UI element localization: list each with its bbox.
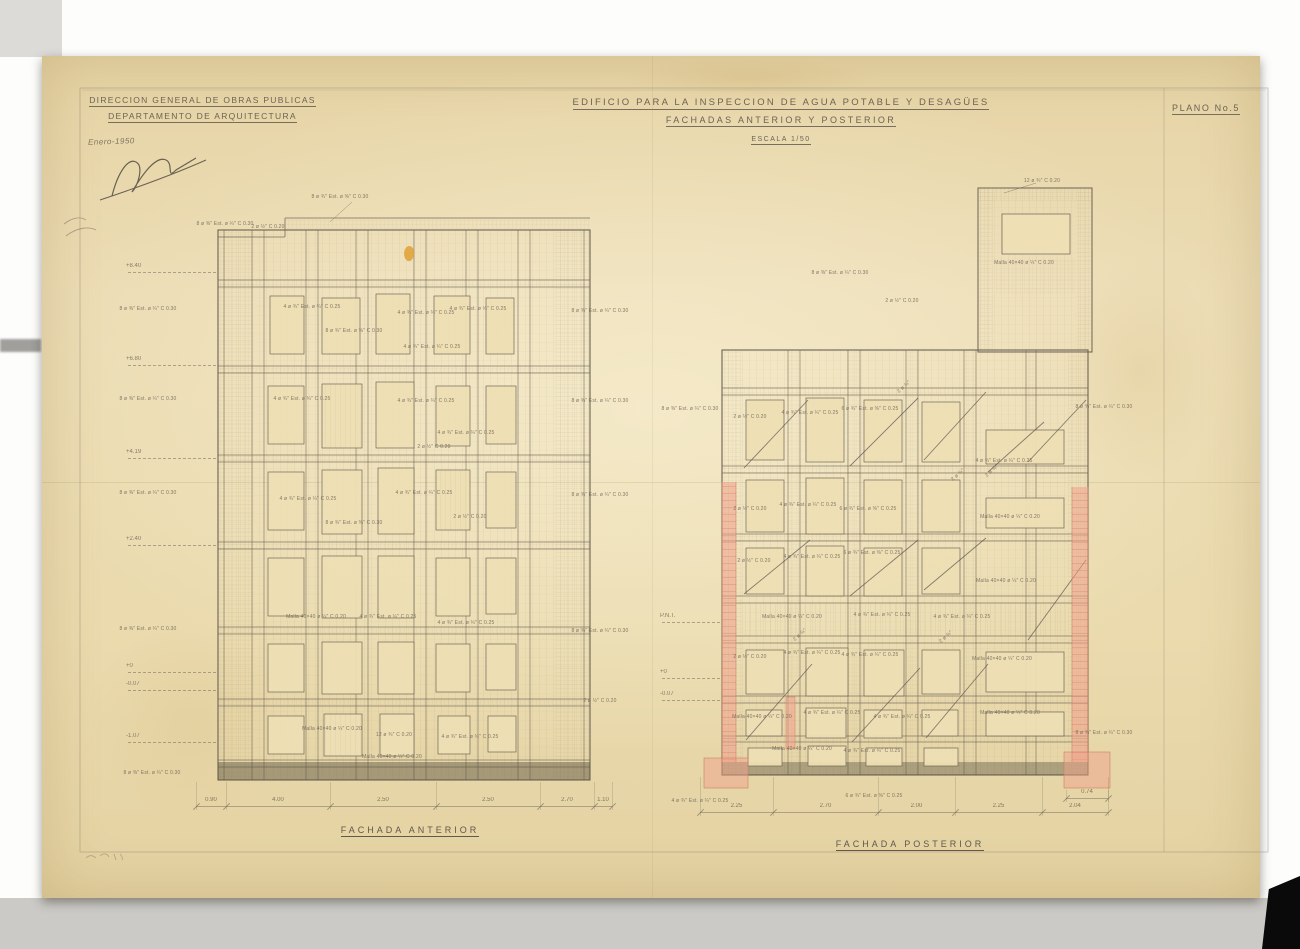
elevation-label: -0.07 xyxy=(126,681,140,687)
rebar-callout: 8 ø ⅜″ Est. ø ¼″ C 0.30 xyxy=(119,490,176,496)
org-line-1: DIRECCION GENERAL DE OBRAS PUBLICAS xyxy=(89,95,316,107)
datum-dash xyxy=(662,622,720,623)
rebar-callout: 4 ø ¾″ Est. ø ¼″ C 0.25 xyxy=(397,310,454,316)
rebar-callout: 8 ø ⅜″ Est. ø ¼″ C 0.30 xyxy=(661,406,718,412)
elevation-label: +8.40 xyxy=(126,263,141,269)
dim-anterior-value: 2.50 xyxy=(377,797,389,803)
dim-anterior-value: 1.10 xyxy=(597,797,609,803)
rebar-callout: 8 ø ⅜″ Est. ø ¼″ C 0.30 xyxy=(571,308,628,314)
elevation-label: +4.19 xyxy=(126,449,141,455)
rebar-callout: 2 ø ½″ C 0.20 xyxy=(583,698,616,704)
elevation-label: +6.80 xyxy=(126,356,141,362)
dim-posterior-line xyxy=(700,812,1108,813)
datum-dash xyxy=(662,678,720,679)
dim-posterior-extension xyxy=(1042,777,1043,816)
rebar-callout: 4 ø ¾″ Est. ø ¼″ C 0.25 xyxy=(933,614,990,620)
drawing-title-block: EDIFICIO PARA LA INSPECCION DE AGUA POTA… xyxy=(498,92,1064,146)
dim-anterior-line xyxy=(196,806,612,807)
rebar-callout: Malla 40×40 ø ¼″ C 0.20 xyxy=(732,714,792,720)
dim-footing-extension xyxy=(1108,790,1109,802)
rebar-callout: 8 ø ¾″ Est. ø ⅜″ C 0.30 xyxy=(325,520,382,526)
rebar-callout: 2 ø ½″ C 0.20 xyxy=(885,298,918,304)
rebar-callout: Malla 40×40 ø ¼″ C 0.20 xyxy=(772,746,832,752)
rebar-callout: 4 ø ¾″ Est. ø ¼″ C 0.25 xyxy=(397,398,454,404)
dim-posterior-value: 2.04 xyxy=(1069,803,1081,809)
rebar-callout: 2 ø ½″ C 0.20 xyxy=(453,514,486,520)
facade-posterior-drawing xyxy=(722,183,1092,775)
rebar-callout: Malla 40×40 ø ¼″ C 0.20 xyxy=(762,614,822,620)
facade-anterior-label: FACHADA ANTERIOR xyxy=(341,825,480,837)
scanned-drawing-page: DIRECCION GENERAL DE OBRAS PUBLICAS DEPA… xyxy=(0,0,1300,949)
date-note: Enero-1950 xyxy=(88,136,135,147)
rebar-callout: 4 ø ¾″ Est. ø ¼″ C 0.25 xyxy=(779,502,836,508)
elevation-label: -1.07 xyxy=(126,733,140,739)
rebar-callout: 4 ø ¾″ Est. ø ¼″ C 0.25 xyxy=(783,554,840,560)
rebar-callout: Malla 40×40 ø ¼″ C 0.20 xyxy=(994,260,1054,266)
elevation-dash xyxy=(128,272,216,273)
rebar-callout: 12 ø ¾″ C 0.20 xyxy=(376,732,412,738)
rebar-callout: 8 ø ⅜″ Est. ø ¼″ C 0.30 xyxy=(1075,730,1132,736)
rebar-callout: 2 ø ½″ C 0.20 xyxy=(417,444,450,450)
rebar-callout: 4 ø ¾″ Est. ø ¼″ C 0.25 xyxy=(437,620,494,626)
elevation-dash xyxy=(128,545,216,546)
facade-posterior-label: FACHADA POSTERIOR xyxy=(836,839,985,851)
rebar-callout: 8 ø ⅜″ Est. ø ¼″ C 0.30 xyxy=(119,626,176,632)
dim-anterior-extension xyxy=(540,782,541,810)
dim-posterior-extension xyxy=(700,777,701,816)
dim-anterior-extension xyxy=(594,782,595,810)
rebar-callout: 4 ø ¾″ Est. ø ¼″ C 0.25 xyxy=(853,612,910,618)
elevation-dash xyxy=(128,458,216,459)
org-line-2: DEPARTAMENTO DE ARQUITECTURA xyxy=(108,111,297,123)
title-line-2: FACHADAS ANTERIOR Y POSTERIOR xyxy=(666,115,896,127)
dim-posterior-value: 2.00 xyxy=(911,803,923,809)
rebar-callout: 4 ø ¾″ Est. ø ¼″ C 0.25 xyxy=(395,490,452,496)
rebar-callout: Malla 40×40 ø ¼″ C 0.20 xyxy=(362,754,422,760)
rebar-callout: 8 ø ⅜″ Est. ø ¼″ C 0.30 xyxy=(571,398,628,404)
rebar-callout: 4 ø ¾″ Est. ø ¼″ C 0.25 xyxy=(437,430,494,436)
datum-label: P.N.T. xyxy=(660,613,676,619)
rebar-callout: 2 ø ½″ C 0.20 xyxy=(733,654,766,660)
rebar-callout: 4 ø ¾″ Est. ø ¼″ C 0.25 xyxy=(403,344,460,350)
rebar-callout: 2 ø ½″ C 0.20 xyxy=(733,506,766,512)
dim-anterior-value: 4.00 xyxy=(272,797,284,803)
dim-anterior-extension xyxy=(612,782,613,810)
rebar-callout: 4 ø ¾″ Est. ø ¼″ C 0.25 xyxy=(449,306,506,312)
rebar-callout: 8 ø ⅜″ Est. ø ¼″ C 0.30 xyxy=(119,396,176,402)
dim-posterior-extension xyxy=(878,777,879,816)
datum-dash xyxy=(662,700,720,701)
signature-scribble xyxy=(100,158,206,200)
dim-anterior-extension xyxy=(330,782,331,810)
rebar-callout: 2 ø ½″ C 0.20 xyxy=(251,224,284,230)
rebar-callout: 8 ø ¾″ Est. ø ⅜″ C 0.30 xyxy=(325,328,382,334)
rebar-callout: 8 ø ⅜″ Est. ø ¼″ C 0.30 xyxy=(811,270,868,276)
rebar-callout: Malla 40×40 ø ¼″ C 0.20 xyxy=(976,578,1036,584)
rebar-callout: Malla 40×40 ø ¼″ C 0.20 xyxy=(286,614,346,620)
rebar-callout: Malla 40×40 ø ¼″ C 0.20 xyxy=(302,726,362,732)
rebar-callout: 4 ø ¾″ Est. ø ¼″ C 0.25 xyxy=(273,396,330,402)
rebar-callout: 4 ø ¾″ Est. ø ¼″ C 0.25 xyxy=(783,650,840,656)
rebar-callout: 4 ø ¾″ Est. ø ¼″ C 0.25 xyxy=(843,748,900,754)
dim-anterior-value: 0.90 xyxy=(205,797,217,803)
dim-posterior-value: 2.25 xyxy=(731,803,743,809)
dim-anterior-extension xyxy=(436,782,437,810)
datum-label: +0 xyxy=(660,669,667,675)
rebar-callout: 4 ø ¾″ Est. ø ¼″ C 0.25 xyxy=(359,614,416,620)
dim-posterior-value: 2.70 xyxy=(820,803,832,809)
rebar-callout: 8 ø ¾″ Est. ø ⅜″ C 0.30 xyxy=(311,194,368,200)
rebar-callout: 8 ø ⅜″ Est. ø ¼″ C 0.30 xyxy=(571,492,628,498)
rebar-callout: 8 ø ⅜″ Est. ø ¼″ C 0.30 xyxy=(119,306,176,312)
rebar-callout: 12 ø ¾″ C 0.20 xyxy=(1024,178,1060,184)
rebar-callout: 4 ø ¾″ Est. ø ¼″ C 0.25 xyxy=(803,710,860,716)
elevation-dash xyxy=(128,365,216,366)
corner-number-scribble xyxy=(86,854,122,860)
dim-anterior-value: 2.70 xyxy=(561,797,573,803)
dim-anterior-extension xyxy=(196,782,197,810)
title-line-1: EDIFICIO PARA LA INSPECCION DE AGUA POTA… xyxy=(573,97,990,110)
elevation-label: +0 xyxy=(126,663,133,669)
rebar-callout: Malla 40×40 ø ¼″ C 0.20 xyxy=(980,710,1040,716)
datum-label: -0.07 xyxy=(660,691,674,697)
dim-posterior-extension xyxy=(773,777,774,816)
elevation-dash xyxy=(128,690,216,691)
dim-posterior-extension xyxy=(955,777,956,816)
dim-anterior-value: 2.50 xyxy=(482,797,494,803)
rebar-callout: 4 ø ¾″ Est. ø ¼″ C 0.25 xyxy=(781,410,838,416)
rebar-callout: Malla 40×40 ø ¼″ C 0.20 xyxy=(980,514,1040,520)
rebar-callout: 6 ø ¾″ Est. ø ⅜″ C 0.25 xyxy=(845,793,902,799)
rebar-callout: 8 ø ⅜″ Est. ø ¼″ C 0.30 xyxy=(196,221,253,227)
rebar-callout: 4 ø ¾″ Est. ø ¼″ C 0.25 xyxy=(283,304,340,310)
plano-number: PLANO No.5 xyxy=(1172,103,1240,115)
rebar-callout: 2 ø ½″ C 0.20 xyxy=(737,558,770,564)
org-title-block: DIRECCION GENERAL DE OBRAS PUBLICAS DEPA… xyxy=(85,92,320,124)
elevation-dash xyxy=(128,672,216,673)
rebar-callout: 4 ø ¾″ Est. ø ¼″ C 0.25 xyxy=(841,652,898,658)
elevation-dash xyxy=(128,742,216,743)
rebar-callout: 2 ø ½″ C 0.20 xyxy=(733,414,766,420)
rebar-callout: 6 ø ¾″ Est. ø ⅜″ C 0.25 xyxy=(843,550,900,556)
dim-footing-extension xyxy=(1066,790,1067,802)
rebar-callout: 4 ø ¾″ Est. ø ¼″ C 0.25 xyxy=(441,734,498,740)
scale-note: ESCALA 1/50 xyxy=(751,136,810,145)
dim-footing-value: 0.74 xyxy=(1081,789,1093,795)
rebar-callout: 6 ø ¾″ Est. ø ⅜″ C 0.25 xyxy=(841,406,898,412)
rebar-callout: 4 ø ¾″ Est. ø ¼″ C 0.25 xyxy=(975,458,1032,464)
rebar-callout: 8 ø ⅜″ Est. ø ¼″ C 0.30 xyxy=(123,770,180,776)
dim-footing-line xyxy=(1066,798,1108,799)
rebar-callout: 8 ø ⅜″ Est. ø ¼″ C 0.30 xyxy=(571,628,628,634)
elevation-label: +2.40 xyxy=(126,536,141,542)
rebar-callout: 8 ø ⅜″ Est. ø ¼″ C 0.30 xyxy=(1075,404,1132,410)
dim-anterior-extension xyxy=(226,782,227,810)
dim-posterior-value: 2.25 xyxy=(993,803,1005,809)
rebar-callout: 4 ø ¾″ Est. ø ¼″ C 0.25 xyxy=(873,714,930,720)
rebar-callout: 4 ø ¾″ Est. ø ¼″ C 0.25 xyxy=(279,496,336,502)
rebar-callout: Malla 40×40 ø ¼″ C 0.20 xyxy=(972,656,1032,662)
rebar-callout: 6 ø ¾″ Est. ø ⅜″ C 0.25 xyxy=(839,506,896,512)
